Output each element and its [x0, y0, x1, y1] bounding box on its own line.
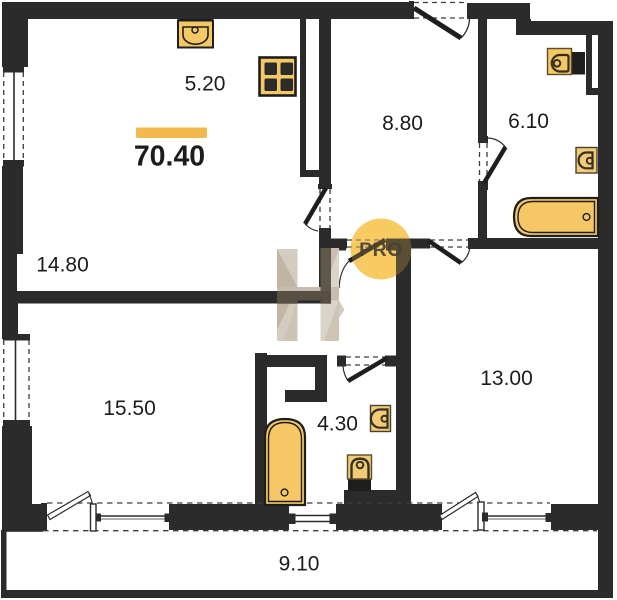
svg-text:PRO: PRO [359, 239, 403, 261]
svg-text:13.00: 13.00 [480, 367, 533, 390]
svg-text:14.80: 14.80 [36, 254, 89, 277]
svg-text:6.10: 6.10 [508, 110, 549, 133]
svg-text:9.10: 9.10 [279, 553, 320, 576]
svg-text:5.20: 5.20 [185, 73, 226, 96]
svg-text:4.30: 4.30 [317, 413, 358, 436]
svg-text:15.50: 15.50 [103, 397, 156, 420]
svg-text:8.80: 8.80 [382, 112, 423, 135]
svg-text:70.40: 70.40 [134, 141, 205, 173]
